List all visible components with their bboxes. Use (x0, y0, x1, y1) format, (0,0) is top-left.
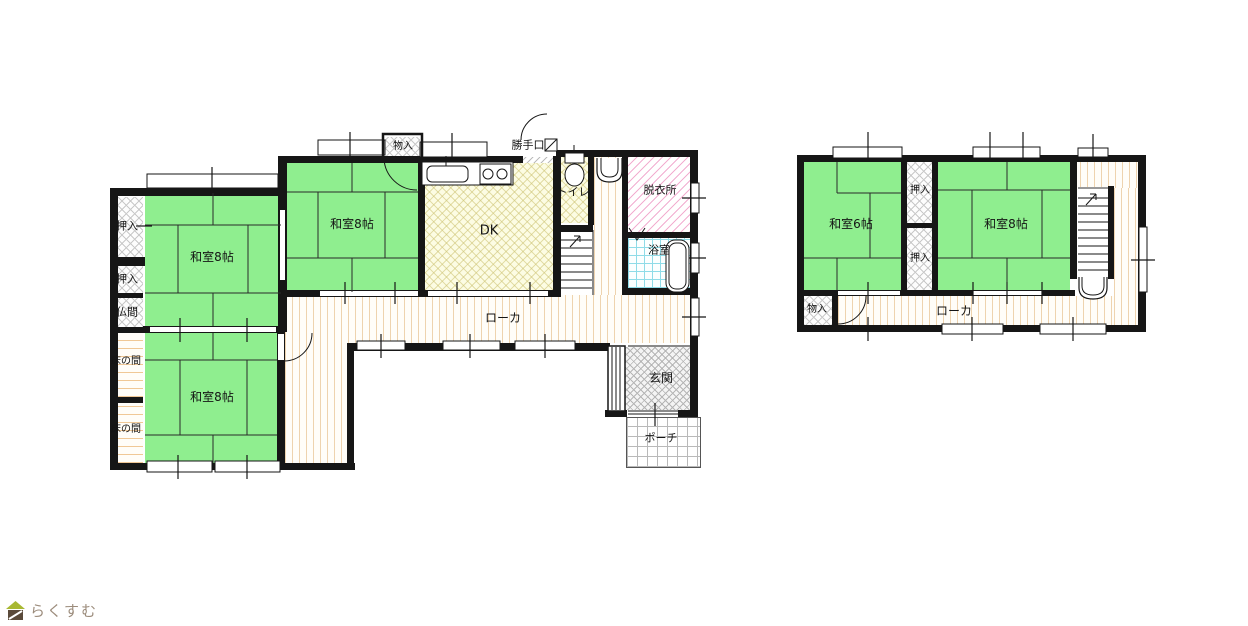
label-oshiire-2f-bottom: 押入 (910, 254, 930, 264)
corridor-2f-door-arc (838, 296, 866, 324)
logo-text: らくすむ (30, 600, 98, 621)
washbasin-icon (597, 158, 622, 182)
label-monoire-2f: 物入 (807, 305, 827, 315)
walls-1f (110, 150, 698, 470)
genkan-sliding-doors (608, 346, 625, 411)
label-genkan: 玄関 (649, 372, 673, 384)
label-yokushitsu: 浴室 (648, 245, 670, 256)
site-logo: らくすむ (6, 600, 98, 621)
stairs-1f (558, 230, 593, 295)
label-oshiire-1: 押入 (116, 221, 138, 232)
label-toilet: トイレ (557, 187, 590, 198)
label-tokonoma-1: 床の間 (111, 357, 141, 367)
house-icon (6, 601, 25, 620)
label-washitsu-mid: 和室8帖 (330, 218, 374, 230)
label-roka-1f: ローカ (485, 312, 521, 324)
label-tokonoma-2: 床の間 (111, 425, 141, 435)
label-washitsu-6: 和室6帖 (829, 218, 873, 230)
label-roka-2f: ローカ (936, 305, 972, 317)
washitsu-sw-door-arc (284, 333, 312, 361)
monoire-1f-door-arc (384, 159, 417, 190)
label-oshiire-2f-top: 押入 (910, 186, 930, 196)
label-dk: DK (480, 225, 499, 238)
label-porch: ポーチ (645, 433, 678, 444)
linework-layer (0, 0, 1248, 626)
label-washitsu-8: 和室8帖 (984, 218, 1028, 230)
floorplan-canvas: 和室8帖 和室8帖 和室8帖 押入 押入 仏間 床の間 床の間 物入 勝手口 ト… (0, 0, 1248, 626)
label-washitsu-sw: 和室8帖 (190, 391, 234, 403)
label-katteguchi: 勝手口 (512, 140, 545, 151)
label-washitsu-nw: 和室8帖 (190, 251, 234, 263)
stairs-2f-arch (1079, 277, 1107, 299)
stairs-2f (1078, 188, 1108, 270)
label-oshiire-2: 押入 (116, 274, 138, 285)
label-butsuma: 仏間 (116, 307, 138, 318)
label-datsuijo: 脱衣所 (644, 185, 677, 196)
label-monoire-1f: 物入 (393, 142, 413, 152)
